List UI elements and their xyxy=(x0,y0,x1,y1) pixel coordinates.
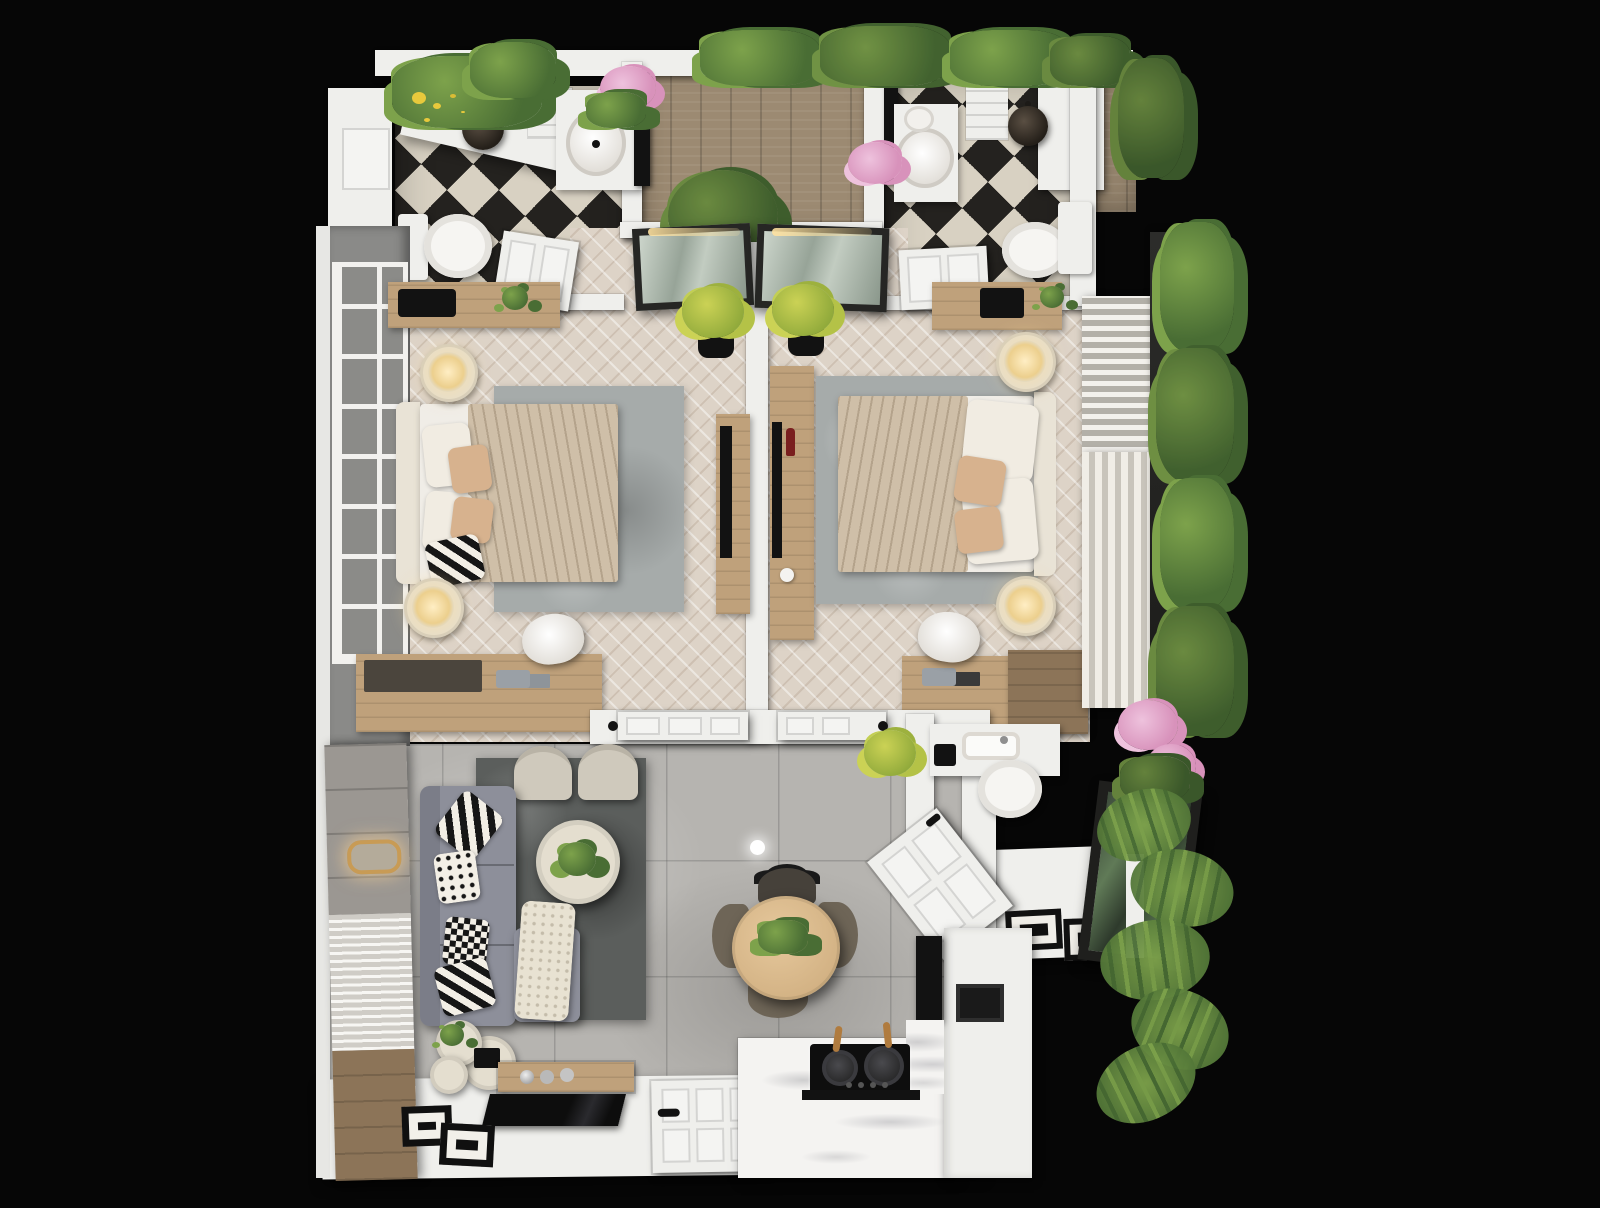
sofa-pillow-dotted xyxy=(433,849,482,904)
dining-centerpiece xyxy=(758,920,808,954)
wc-counter-mat xyxy=(934,744,956,766)
armchair xyxy=(514,746,572,800)
pink-flower-greens xyxy=(586,92,646,128)
door-panel xyxy=(786,717,814,735)
bird-figurine xyxy=(780,568,794,582)
bed-left-headboard xyxy=(396,402,420,584)
kitchen-cabinet-column xyxy=(944,928,1032,1178)
media-tray xyxy=(498,1062,634,1092)
dresser-right-laptop xyxy=(980,288,1024,318)
feature-wall-slats xyxy=(329,913,415,1051)
bed-right-duvet xyxy=(838,396,968,572)
wc-sink xyxy=(962,732,1020,760)
top-hedge xyxy=(700,30,820,86)
right-hedge xyxy=(1156,348,1234,482)
potted-plant-left xyxy=(682,286,744,338)
door-panel xyxy=(822,717,850,735)
cooktop-shelf xyxy=(802,1090,920,1100)
door-handle xyxy=(608,721,618,731)
bedroom-right-blinds xyxy=(1082,296,1160,452)
right-hedge xyxy=(1160,222,1234,352)
shower-bench-right xyxy=(966,86,1008,140)
bedroom-right-curtain xyxy=(1082,452,1160,708)
wall-sconce-icon xyxy=(347,839,402,874)
tv-bedroom-left xyxy=(720,426,732,558)
door-panel xyxy=(710,717,740,735)
desk-right-cabinet xyxy=(1008,650,1088,734)
pendant-light-right-icon xyxy=(1008,106,1048,146)
picture-frame xyxy=(439,1123,495,1168)
tray-candle xyxy=(520,1070,534,1084)
glass-door-right-glow xyxy=(772,228,872,236)
wc-plant xyxy=(864,730,916,776)
bathroom-left-wall-niche xyxy=(342,128,390,190)
lamp-left-top xyxy=(428,352,468,392)
bed-right xyxy=(838,392,1056,576)
armchair xyxy=(578,744,638,800)
frying-pan xyxy=(822,1050,858,1086)
coffee-table-plant xyxy=(558,842,596,876)
door-panel xyxy=(626,717,660,735)
dresser-right-plant xyxy=(1040,286,1064,308)
tv-flat xyxy=(482,1094,626,1126)
feature-wall-fabric-panel xyxy=(324,743,410,915)
yellow-flowers xyxy=(412,92,426,104)
cooktop-knob xyxy=(846,1082,852,1088)
glass-door-left-glow xyxy=(648,228,740,236)
top-hedge xyxy=(820,26,950,86)
sink-right-small xyxy=(904,106,934,132)
bed-right-accent-pillow xyxy=(953,455,1008,508)
door-panel xyxy=(668,717,702,735)
lamp-left-bottom xyxy=(412,586,454,628)
bed-left-accent-pillow xyxy=(447,443,493,494)
bed-left-duvet xyxy=(468,404,618,582)
bedroom-left-door-flat xyxy=(618,712,748,740)
planter-top-left-2 xyxy=(470,42,556,98)
dresser-left-bag xyxy=(398,289,456,317)
kitchen-tall-appliance xyxy=(916,936,942,1022)
sofa-throw-blanket xyxy=(514,900,576,1021)
side-table-book xyxy=(474,1048,500,1068)
door-panel xyxy=(696,1128,725,1162)
wine-bottle xyxy=(786,428,795,456)
lamp-right-top xyxy=(1004,340,1046,382)
door-panel xyxy=(695,1088,724,1122)
floor-plan-render xyxy=(0,0,1600,1208)
kitchen-backsplash xyxy=(906,1020,944,1094)
sink-right-basin xyxy=(896,128,954,188)
side-table-plant xyxy=(440,1024,464,1046)
right-hedge xyxy=(1160,478,1234,610)
desk-right-items xyxy=(922,668,956,686)
pink-flowers-deck xyxy=(848,142,902,184)
tv-bedroom-right xyxy=(772,422,782,558)
desk-left-inlay xyxy=(364,660,482,692)
door-handle xyxy=(658,1109,680,1117)
ceiling-light-dot xyxy=(750,840,765,855)
bed-right-accent-pillow xyxy=(953,505,1004,554)
wc-toilet xyxy=(978,760,1042,818)
toilet-right-tank xyxy=(1058,202,1092,274)
kitchen-oven xyxy=(956,984,1004,1022)
sink-left-drain xyxy=(592,140,600,148)
right-top-planting xyxy=(1118,58,1184,178)
bed-left xyxy=(396,402,622,584)
dresser-left-plant xyxy=(502,286,528,310)
wc-faucet xyxy=(1000,736,1008,744)
nesting-table xyxy=(430,1056,468,1094)
pink-flowers-entry xyxy=(1118,700,1178,750)
desk-left-items xyxy=(496,670,530,688)
potted-plant-right xyxy=(772,284,834,336)
top-hedge xyxy=(1050,36,1130,86)
sauce-pan xyxy=(864,1046,904,1086)
toilet-left-bowl xyxy=(424,214,492,278)
door-panel xyxy=(662,1128,691,1162)
door-panel xyxy=(661,1088,690,1122)
lamp-right-bottom xyxy=(1004,584,1046,626)
bedroom-right-door-flat xyxy=(778,712,886,740)
